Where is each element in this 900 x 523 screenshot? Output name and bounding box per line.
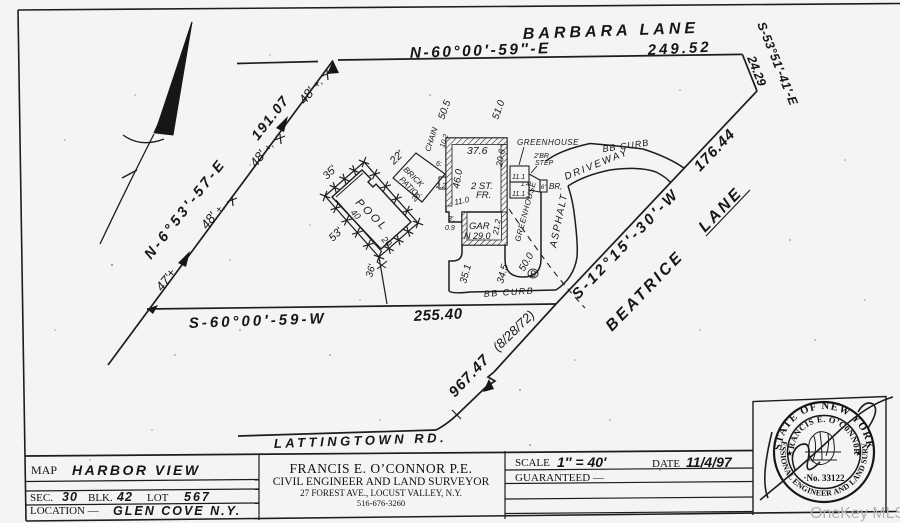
svg-text:HARBOR VIEW: HARBOR VIEW [72,462,201,478]
svg-text:3′,: 3′, [448,216,455,223]
svg-text:42: 42 [116,490,133,504]
svg-text:OneKey MLS: OneKey MLS [810,505,900,522]
svg-text:GUARANTEED —: GUARANTEED — [515,472,605,484]
svg-text:DRIVEWAY: DRIVEWAY [563,147,631,183]
svg-text:27 FOREST AVE., LOCUST VALLEY,: 27 FOREST AVE., LOCUST VALLEY, N.Y. [300,488,462,498]
svg-text:SEC.: SEC. [30,492,53,504]
svg-text:★: ★ [855,449,862,458]
svg-text:LOT: LOT [147,492,169,504]
svg-text:6′: 6′ [541,185,546,191]
svg-text:191.07: 191.07 [248,92,293,143]
svg-text:11.1: 11.1 [512,174,525,181]
svg-text:249.52: 249.52 [646,39,712,59]
svg-text:48′ +,: 48′ +, [296,75,326,107]
svg-text:11.0: 11.0 [454,195,471,207]
svg-text:11/4/97: 11/4/97 [686,454,733,470]
svg-text:S-12°15′-30′-W: S-12°15′-30′-W [569,185,683,303]
svg-text:N 29.0: N 29.0 [464,231,491,241]
svg-text:CIVIL ENGINEER AND LAND SURVEY: CIVIL ENGINEER AND LAND SURVEYOR [273,476,490,488]
svg-text:GREENHOUSE: GREENHOUSE [513,180,538,242]
svg-text:35.1: 35.1 [458,263,474,285]
svg-text:53′: 53′ [327,225,346,244]
svg-text:46.0: 46.0 [451,168,465,190]
svg-text:21.2: 21.2 [491,218,503,236]
svg-text:11.1: 11.1 [512,191,525,198]
svg-text:DATE: DATE [652,458,680,470]
svg-text:2′BR: 2′BR [533,153,549,160]
svg-text:FRANCIS E. O’CONNOR P.E.: FRANCIS E. O’CONNOR P.E. [289,461,472,476]
svg-text:24.29: 24.29 [744,53,769,88]
svg-text:255.40: 255.40 [412,305,463,325]
svg-text:BR,: BR, [549,182,562,191]
svg-text:48′ +,: 48′ +, [198,200,228,232]
svg-text:30: 30 [62,490,78,504]
svg-text:FR.: FR. [476,190,491,201]
svg-text:34.5: 34.5 [495,263,511,285]
svg-text:LOCATION —: LOCATION — [30,505,100,517]
svg-text:BLK.: BLK. [88,492,113,504]
svg-text:176.44: 176.44 [691,126,739,175]
svg-text:(8/28/72): (8/28/72) [490,307,538,354]
svg-text:SCALE: SCALE [515,457,550,469]
svg-text:516-676-3260: 516-676-3260 [357,498,405,508]
svg-text:47′±: 47′± [153,266,180,294]
svg-text:GREENHOUSE: GREENHOUSE [517,138,579,147]
svg-text:PROFESSIONAL ENGINEER AND LAND: PROFESSIONAL ENGINEER AND LAND SURVEYOR [0,0,870,498]
svg-text:36′: 36′ [364,262,378,278]
svg-text:ASPHALT: ASPHALT [548,192,570,249]
svg-text:STEP: STEP [535,160,554,167]
svg-text:FRANCIS E. O’C0NN0R: FRANCIS E. O’C0NN0R [0,0,862,455]
svg-text:6:: 6: [436,161,442,168]
svg-text:CHAIN: CHAIN [423,126,439,153]
svg-text:LATTINGTOWN RD.: LATTINGTOWN RD. [274,430,448,451]
svg-text:50.5: 50.5 [436,99,453,121]
svg-text:967.47: 967.47 [445,351,493,401]
svg-text:·No. 33122: ·No. 33122 [803,473,845,483]
svg-text:37.6: 37.6 [467,145,488,157]
svg-text:N-60°00′-59″-E: N-60°00′-59″-E [410,40,552,62]
svg-text:S-60°00′-59-W: S-60°00′-59-W [189,310,327,332]
svg-text:22′: 22′ [387,148,407,168]
svg-text:BB CURB: BB CURB [483,285,534,298]
svg-text:35′: 35′ [321,163,340,182]
svg-text:567: 567 [184,490,211,504]
svg-text:LANE: LANE [696,184,747,236]
svg-text:GLEN COVE N.Y.: GLEN COVE N.Y. [113,504,241,518]
svg-text:MAP: MAP [31,463,57,477]
svg-text:0.9: 0.9 [445,225,455,232]
svg-text:51.0: 51.0 [490,99,507,121]
svg-text:1″ = 40′: 1″ = 40′ [557,454,607,470]
